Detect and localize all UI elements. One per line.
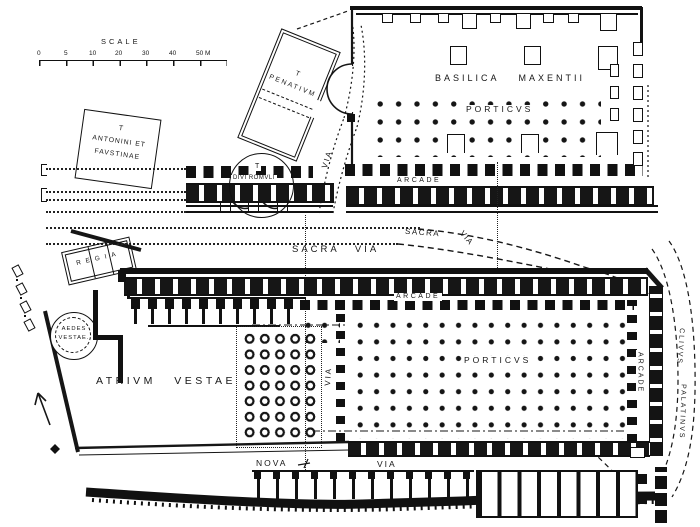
nova-via-label: NOVA <box>256 459 287 468</box>
corner-block <box>638 495 647 504</box>
arcade-label-east: ARCADE <box>636 350 644 395</box>
scale-title: SCALE <box>101 38 141 46</box>
temple-divus-romulus <box>229 153 294 218</box>
pillar-stems-row <box>134 309 300 324</box>
wall-pilaster <box>438 14 449 23</box>
atrium-vestae-label: ATRIVM VESTAE <box>96 376 236 388</box>
wall-niche <box>610 108 619 121</box>
wall-niche <box>633 108 643 122</box>
column-row <box>300 300 634 310</box>
wall-niche <box>633 152 643 166</box>
arcade-band <box>346 186 654 206</box>
chamber-walls <box>478 472 636 516</box>
wall-niche <box>633 86 643 100</box>
scale-tick: 10 <box>89 50 96 57</box>
arcade-label: ARCADE <box>395 177 443 185</box>
small-structures-glyph <box>8 265 38 345</box>
wall-pilaster <box>600 14 617 31</box>
wall-pilaster <box>382 14 393 23</box>
complex-north-wall <box>120 268 648 274</box>
wall-end-block <box>118 270 126 282</box>
dot <box>24 315 26 317</box>
temple-divus-romulus-label: DIVI ROMVLI <box>231 175 277 182</box>
wall-pilaster <box>568 14 579 23</box>
arcade-label: ARCADE <box>394 293 442 301</box>
colonnade-stems <box>257 479 472 499</box>
aedes-vestae-label: AEDES <box>51 326 97 332</box>
scale-tick: 20 <box>115 50 122 57</box>
clivus-road-edge <box>669 241 695 497</box>
direction-ticks <box>298 459 310 468</box>
basilica-pier <box>450 46 467 65</box>
small-structure <box>15 282 27 295</box>
porticus-pier <box>447 134 465 153</box>
scale-bar <box>39 60 227 66</box>
scale-tick: 40 <box>169 50 176 57</box>
dot <box>16 279 18 281</box>
scale-tick: 0 <box>37 50 41 57</box>
road-edge-line <box>346 205 658 207</box>
sacra-via-bend <box>418 229 584 267</box>
porticus-columns <box>352 317 628 439</box>
arcade-band-east <box>649 286 663 456</box>
wall-pilaster <box>490 14 501 23</box>
dotted-line <box>46 211 186 213</box>
wall-bracket <box>41 188 47 202</box>
north-arrow <box>35 393 50 425</box>
small-structure <box>23 318 35 331</box>
scale-tick: 30 <box>142 50 149 57</box>
diamond-marker <box>50 444 60 454</box>
archaeological-site-plan: SCALE 0 5 10 20 30 40 50 M T ANTONINI ET… <box>0 0 700 527</box>
dotted-line <box>46 191 186 193</box>
aedes-vestae: AEDES VESTAE. <box>50 312 98 360</box>
temple-divus-romulus-label-t: T <box>253 163 261 171</box>
porticus-label: PORTICVS <box>462 356 533 365</box>
wall-pilaster <box>410 14 421 23</box>
corner-structure-band <box>655 467 667 523</box>
wall-niche <box>633 42 643 56</box>
sacra-via-north-edge <box>46 227 420 229</box>
section-line-vertical <box>497 162 498 268</box>
wall-pilaster <box>543 14 554 23</box>
wall-pilaster <box>516 14 531 29</box>
porticus-pier <box>596 132 618 155</box>
porticus-label: PORTICVS <box>464 105 535 114</box>
basilica-north-wall <box>350 6 642 10</box>
porticus-pier <box>521 134 539 153</box>
wall-pilaster <box>462 14 477 29</box>
atrium-south-wall-outer <box>79 450 349 455</box>
via-road-edge <box>357 25 365 127</box>
pillar-heads-row <box>131 299 301 309</box>
wall-niche <box>633 130 643 144</box>
scale-tick: 5 <box>64 50 68 57</box>
wall-niche <box>610 64 619 77</box>
arcade-band-south <box>348 441 650 457</box>
wall-block <box>347 114 355 122</box>
wall-bracket <box>41 164 47 176</box>
corner-block-outline <box>630 447 645 458</box>
peristyle-column-grid <box>242 331 318 443</box>
small-structure <box>19 300 31 313</box>
dotted-boundary <box>297 11 348 29</box>
aedes-vestae-label: VESTAE. <box>51 335 97 341</box>
wall-niche <box>610 86 619 99</box>
column-row <box>345 164 643 176</box>
small-structure <box>11 264 23 277</box>
scale-tick: 50 M <box>196 50 210 57</box>
dotted-line <box>46 168 186 170</box>
corner-block <box>637 474 647 484</box>
basilica-east-wall <box>640 7 643 45</box>
basilica-label: BASILICA MAXENTII <box>435 74 585 84</box>
dotted-line <box>46 199 186 201</box>
dot <box>20 297 22 299</box>
basilica-pier <box>524 46 541 65</box>
nova-via-label: VIA <box>377 460 397 469</box>
road-edge-line <box>346 211 658 213</box>
wall-niche <box>633 64 643 78</box>
substructure-chambers <box>476 470 638 518</box>
sacra-via-bend <box>398 244 560 271</box>
temple-antoninus-faustina: T ANTONINI ET FAVSTINAE <box>75 109 162 189</box>
stepped-wall <box>93 290 98 340</box>
colonnade-heads <box>254 471 472 479</box>
arcade-band <box>124 277 648 296</box>
